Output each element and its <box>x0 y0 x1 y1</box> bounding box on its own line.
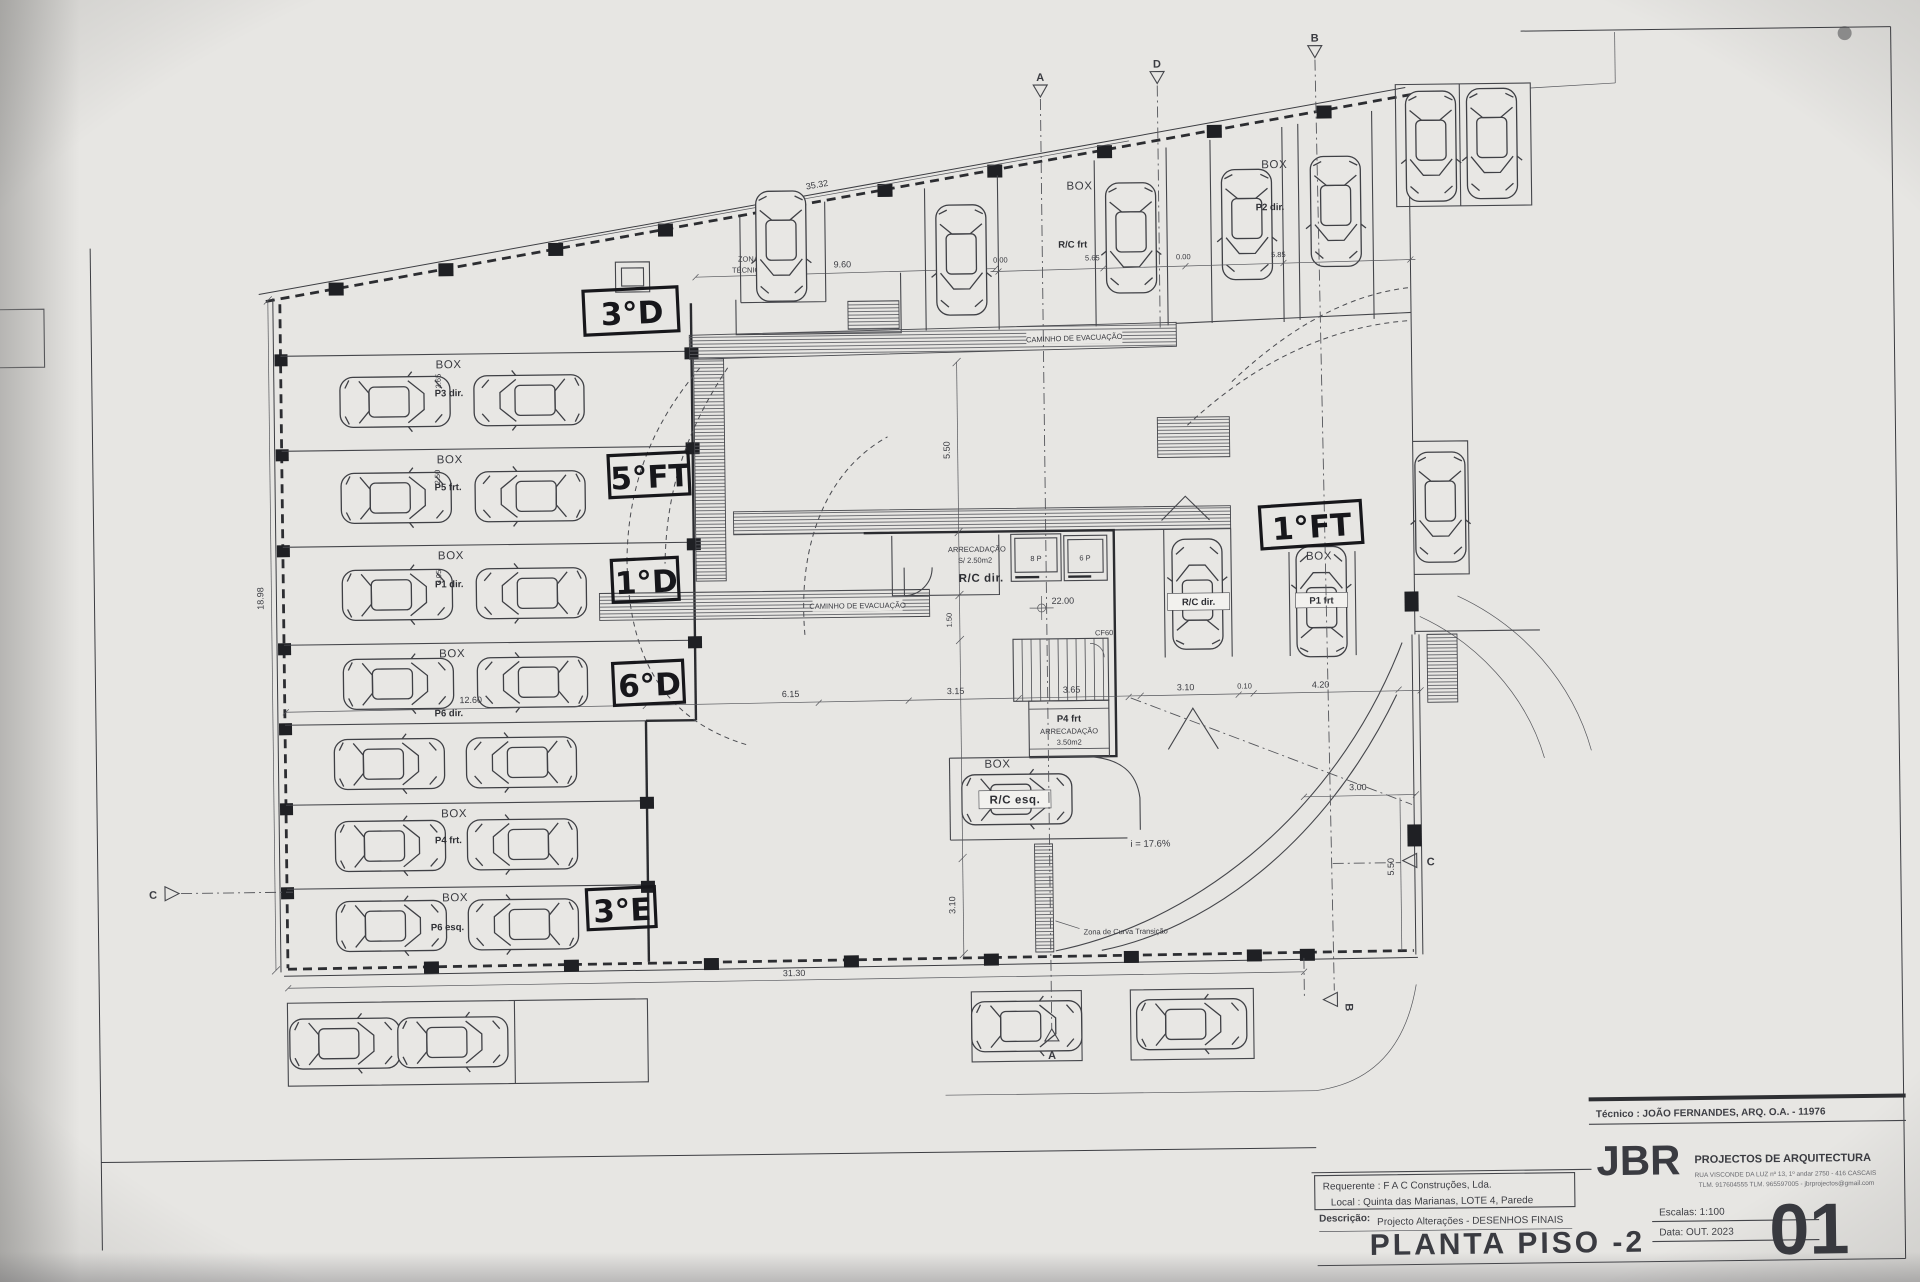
scanned-floor-plan-sheet: BOX P3 dir. 3.65 BOX P5 frt. 2.50 BOX P1… <box>0 0 1920 1282</box>
plan-drawing: BOX P3 dir. 3.65 BOX P5 frt. 2.50 BOX P1… <box>0 0 1920 1282</box>
scan-vignette <box>0 0 1920 1282</box>
